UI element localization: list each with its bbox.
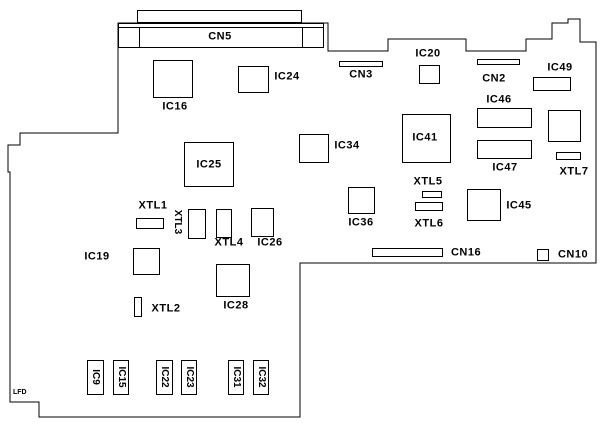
xtl2-outline xyxy=(134,297,142,317)
cn3-outline xyxy=(339,61,383,67)
ic-unlabeled-outline xyxy=(548,110,581,142)
xtl6-outline xyxy=(415,202,443,211)
xtl3-label: XTL3 xyxy=(172,210,182,234)
ic47-label: IC47 xyxy=(492,163,517,174)
ic41-label: IC41 xyxy=(412,133,437,144)
ic19-outline xyxy=(133,248,160,275)
cn5-label: CN5 xyxy=(208,32,232,43)
ic26-outline xyxy=(251,208,274,237)
xtl7-outline xyxy=(556,152,581,160)
ic28-outline xyxy=(216,264,250,297)
ic24-label: IC24 xyxy=(274,72,299,83)
components-layer: CN5IC16IC24CN3IC20CN2IC49IC46IC41IC47XTL… xyxy=(0,0,600,427)
ic16-outline xyxy=(153,60,193,98)
ic16-label: IC16 xyxy=(162,102,187,113)
cn2-outline xyxy=(477,59,520,65)
cn5-divider-1 xyxy=(139,27,140,48)
ic45-label: IC45 xyxy=(506,201,531,212)
cn2-label: CN2 xyxy=(482,74,506,85)
xtl3-outline xyxy=(188,209,206,239)
cn3-label: CN3 xyxy=(349,70,373,81)
ic26-label: IC26 xyxy=(257,238,282,249)
ic36-label: IC36 xyxy=(348,218,373,229)
cn5-shell-outline xyxy=(137,10,302,23)
ic36-outline xyxy=(348,187,375,214)
cn10-outline xyxy=(537,249,549,261)
cn5-inner-line xyxy=(118,27,324,28)
ic45-outline xyxy=(467,189,501,221)
ic25-label: IC25 xyxy=(196,160,221,171)
cn10-label: CN10 xyxy=(558,250,588,261)
ic19-label: IC19 xyxy=(84,252,109,263)
ic23-label: IC23 xyxy=(184,366,194,387)
ic47-outline xyxy=(477,140,532,159)
ic32-label: IC32 xyxy=(256,366,266,387)
ic9-label: IC9 xyxy=(90,369,100,385)
xtl5-label: XTL5 xyxy=(414,177,443,188)
cn16-outline xyxy=(372,248,443,257)
ic31-label: IC31 xyxy=(231,366,241,387)
ic49-label: IC49 xyxy=(547,63,572,74)
ic49-outline xyxy=(533,77,571,91)
cn5-divider-2 xyxy=(302,27,303,48)
ic24-outline xyxy=(238,66,269,93)
xtl1-label: XTL1 xyxy=(139,201,168,212)
xtl4-outline xyxy=(216,209,232,238)
ic28-label: IC28 xyxy=(223,301,248,312)
xtl1-outline xyxy=(136,218,164,229)
pcb-board-diagram: CN5IC16IC24CN3IC20CN2IC49IC46IC41IC47XTL… xyxy=(0,0,600,427)
ic15-label: IC15 xyxy=(116,366,126,387)
ic46-label: IC46 xyxy=(486,95,511,106)
ic34-outline xyxy=(299,134,329,163)
board-corner-text: LFD xyxy=(13,389,27,396)
xtl4-label: XTL4 xyxy=(215,238,244,249)
ic46-outline xyxy=(477,108,532,128)
xtl6-label: XTL6 xyxy=(415,219,444,230)
xtl7-label: XTL7 xyxy=(560,167,589,178)
ic22-label: IC22 xyxy=(159,366,169,387)
ic20-label: IC20 xyxy=(415,49,440,60)
ic34-label: IC34 xyxy=(334,141,359,152)
cn16-label: CN16 xyxy=(451,248,481,259)
ic20-outline xyxy=(419,65,440,84)
xtl2-label: XTL2 xyxy=(152,304,181,315)
xtl5-outline xyxy=(422,191,442,198)
